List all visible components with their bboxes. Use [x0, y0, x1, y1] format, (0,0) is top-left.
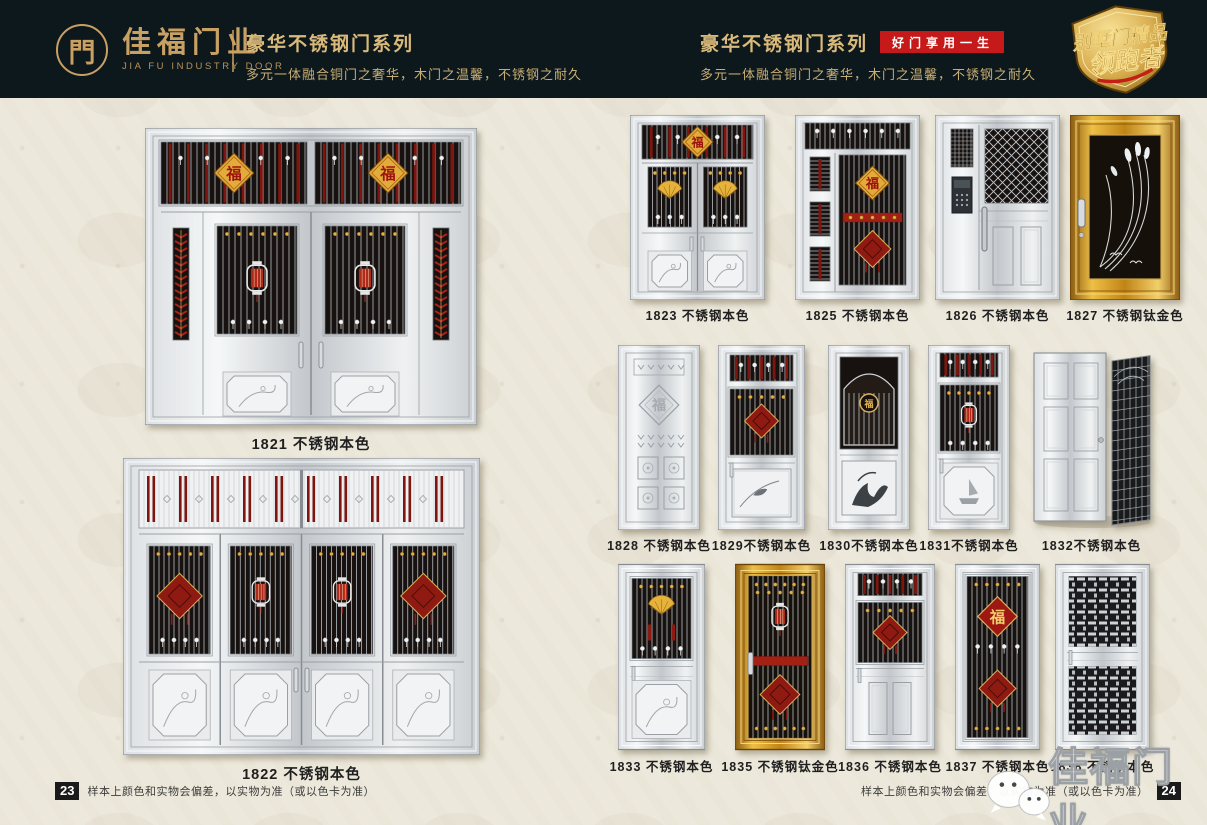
door-card-1828: 福1828 不锈钢本色: [618, 345, 700, 554]
header-band: 門 佳福门业 JIA FU INDUSTRY DOOR 豪华不锈钢门系列 多元一…: [0, 0, 1207, 98]
door-label: 1828 不锈钢本色: [607, 535, 711, 554]
svg-text:福: 福: [651, 397, 666, 413]
logo-symbol: 門: [69, 31, 96, 70]
door-label: 1835 不锈钢钛金色: [721, 756, 838, 775]
door-label: 1829不锈钢本色: [712, 535, 811, 554]
quality-badge: 好门享用一生: [880, 31, 1004, 53]
door-label: 1825 不锈钢本色: [806, 305, 910, 324]
door-label: 1827 不锈钢钛金色: [1066, 305, 1183, 324]
door-image: [618, 563, 705, 751]
door-label: 1831不锈钢本色: [919, 535, 1018, 554]
svg-text:福: 福: [865, 175, 879, 191]
door-image: [1055, 563, 1150, 751]
door-card-1836: 1836 不锈钢本色: [845, 563, 935, 775]
door-label: 1836 不锈钢本色: [838, 756, 942, 775]
footer-left: 23 样本上颜色和实物会偏差，以实物为准（或以色卡为准）: [55, 782, 375, 800]
header-divider: [232, 30, 234, 72]
door-image: 福: [795, 115, 920, 300]
watermark-text: 佳福门业: [1048, 740, 1207, 825]
door-image: [928, 345, 1010, 530]
door-card-1825: 福1825 不锈钢本色: [795, 115, 920, 324]
door-image: 福: [955, 563, 1040, 751]
series-header-left: 豪华不锈钢门系列 多元一体融合铜门之奢华，木门之温馨，不锈钢之耐久: [246, 29, 582, 83]
wechat-icon: [982, 767, 1054, 825]
door-image: 福: [630, 115, 765, 300]
door-image: 福福: [145, 128, 477, 425]
series-subtitle: 多元一体融合铜门之奢华，木门之温馨，不锈钢之耐久: [700, 64, 1036, 83]
premium-shield-badge: 别墅门精品 领跑者: [1042, 3, 1200, 97]
door-card-1823: 福1823 不锈钢本色: [630, 115, 765, 324]
door-card-1827: 1827 不锈钢钛金色: [1070, 115, 1180, 324]
shield-icon: 别墅门精品 领跑者: [1042, 3, 1200, 97]
page-number-left: 23: [55, 782, 79, 800]
door-image: 福: [828, 345, 910, 530]
door-card-1835: 1835 不锈钢钛金色: [735, 563, 825, 775]
svg-text:福: 福: [863, 398, 873, 409]
door-image: [935, 115, 1060, 300]
series-subtitle: 多元一体融合铜门之奢华，木门之温馨，不锈钢之耐久: [246, 64, 582, 83]
door-card-1826: 1826 不锈钢本色: [935, 115, 1060, 324]
series-header-right: 豪华不锈钢门系列好门享用一生 多元一体融合铜门之奢华，木门之温馨，不锈钢之耐久: [700, 29, 1036, 83]
door-card-1832: 1832不锈钢本色: [1028, 345, 1155, 554]
door-image: [735, 563, 825, 751]
door-image: [718, 345, 805, 530]
door-card-1831: 1831不锈钢本色: [928, 345, 1010, 554]
door-image: [123, 458, 480, 755]
svg-text:福: 福: [225, 164, 241, 183]
series-title: 豪华不锈钢门系列: [700, 34, 868, 55]
svg-text:福: 福: [690, 135, 703, 150]
door-card-1830: 福1830不锈钢本色: [828, 345, 910, 554]
catalog-spread: 門 佳福门业 JIA FU INDUSTRY DOOR 豪华不锈钢门系列 多元一…: [0, 0, 1207, 825]
door-label: 1830不锈钢本色: [819, 535, 918, 554]
door-label: 1826 不锈钢本色: [946, 305, 1050, 324]
door-label: 1821 不锈钢本色: [252, 433, 371, 454]
door-label: 1832不锈钢本色: [1042, 535, 1141, 554]
door-image: [1070, 115, 1180, 300]
door-label: 1822 不锈钢本色: [242, 763, 361, 784]
door-card-1829: 1829不锈钢本色: [718, 345, 805, 554]
door-glyph-icon: 門: [56, 24, 108, 76]
door-label: 1833 不锈钢本色: [610, 756, 714, 775]
door-image: [1028, 345, 1155, 530]
series-title: 豪华不锈钢门系列: [246, 29, 582, 56]
door-image: 福: [618, 345, 700, 530]
door-image: [845, 563, 935, 751]
door-card-1821: 福福1821 不锈钢本色: [145, 128, 477, 454]
svg-text:福: 福: [989, 607, 1005, 626]
wechat-watermark: 佳福门业: [982, 740, 1207, 825]
door-card-1822: 1822 不锈钢本色: [123, 458, 480, 784]
color-disclaimer: 样本上颜色和实物会偏差，以实物为准（或以色卡为准）: [87, 783, 375, 799]
door-card-1833: 1833 不锈钢本色: [618, 563, 705, 775]
door-label: 1823 不锈钢本色: [646, 305, 750, 324]
svg-text:福: 福: [379, 164, 395, 183]
